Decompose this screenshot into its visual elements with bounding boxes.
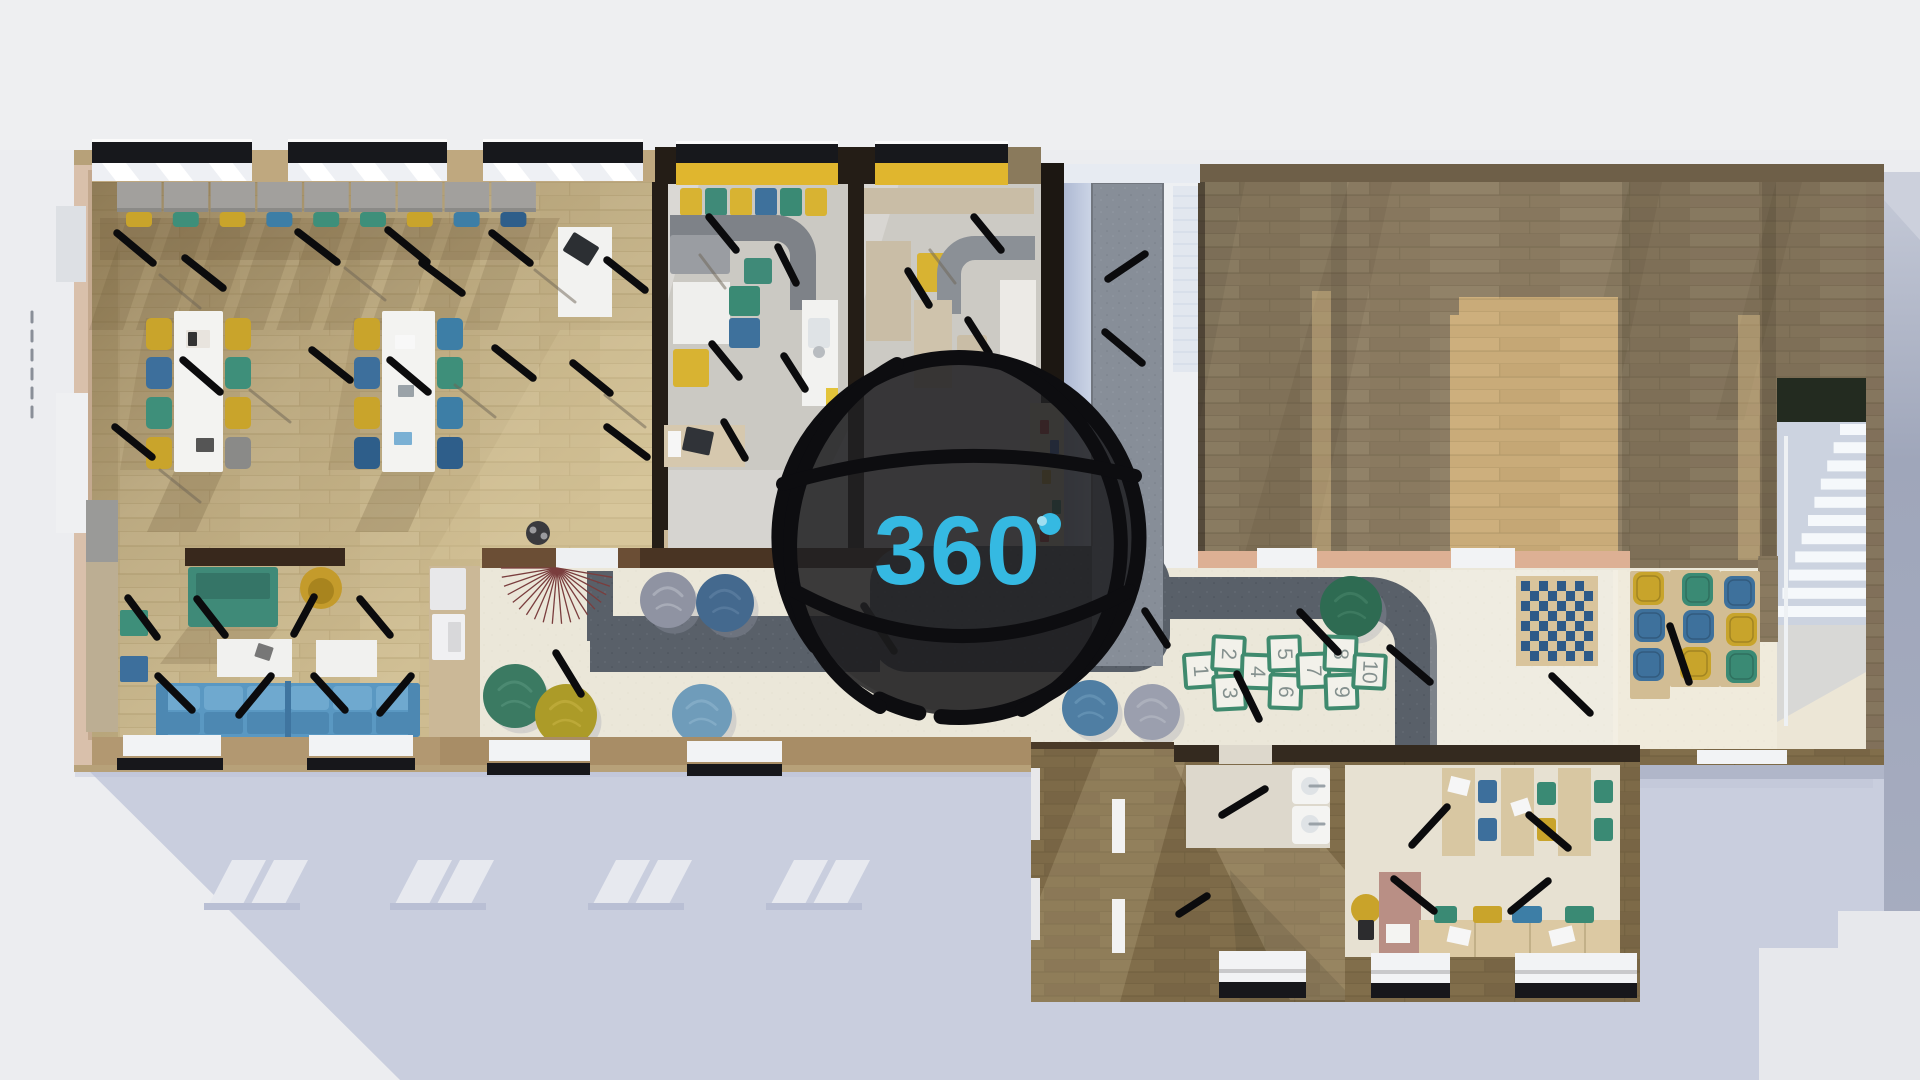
svg-text:2: 2 (1217, 648, 1241, 661)
svg-text:3: 3 (1218, 687, 1242, 700)
svg-text:6: 6 (1274, 686, 1297, 698)
svg-text:7: 7 (1302, 665, 1325, 677)
svg-text:1: 1 (1189, 664, 1213, 677)
svg-text:4: 4 (1246, 666, 1269, 679)
svg-text:9: 9 (1330, 686, 1353, 698)
svg-text:10: 10 (1357, 660, 1381, 685)
svg-text:360: 360 (874, 496, 1040, 605)
svg-text:5: 5 (1273, 648, 1296, 660)
